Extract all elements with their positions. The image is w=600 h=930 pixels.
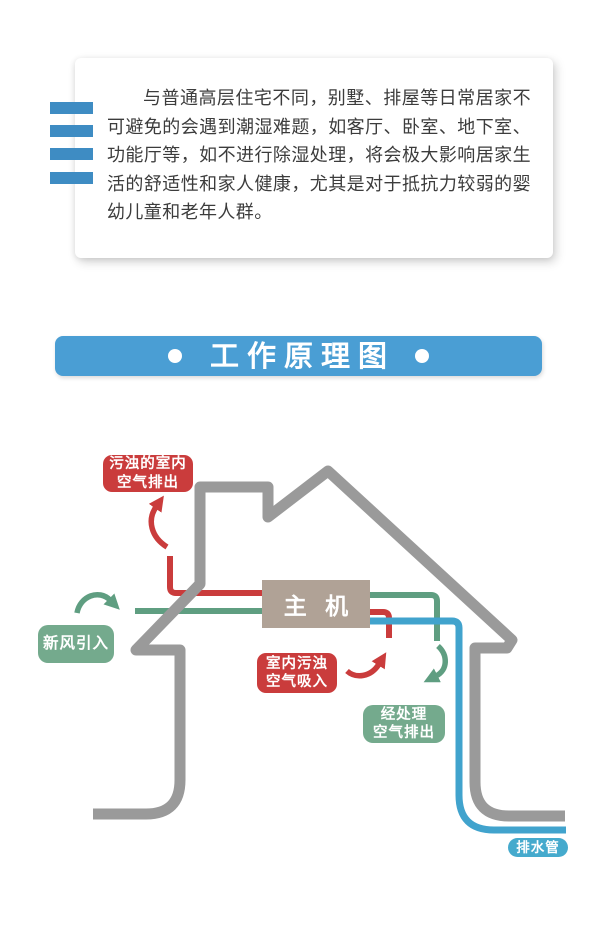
blue-bar-4 [50,172,93,184]
principle-diagram [0,0,600,930]
red-return-pipe-right [368,612,389,638]
red-exhaust-pipe-left [170,556,262,593]
blue-bar-2 [50,125,93,137]
label-dirty-air-exhaust: 污浊的室内 空气排出 [103,455,193,492]
label-indoor-air-suction: 室内污浊 空气吸入 [257,653,337,693]
main-unit-box: 主 机 [262,580,370,628]
treated-air-out-arrow [436,646,445,676]
fresh-air-in-arrow [77,595,110,613]
label-treated-air-out: 经处理 空气排出 [363,705,445,743]
main-unit-label: 主 机 [278,587,354,621]
indoor-suction-arrow [347,664,379,676]
exhaust-up-arrow [151,507,167,547]
blue-bar-1 [50,102,93,114]
label-drain-pipe: 排水管 [508,838,568,857]
label-fresh-air-intake: 新风引入 [38,625,114,663]
blue-bar-3 [50,148,93,160]
house-outline [93,471,565,816]
infographic-page: 与普通高层住宅不同，别墅、排屋等日常居家不可避免的会遇到潮湿难题，如客厅、卧室、… [0,0,600,930]
